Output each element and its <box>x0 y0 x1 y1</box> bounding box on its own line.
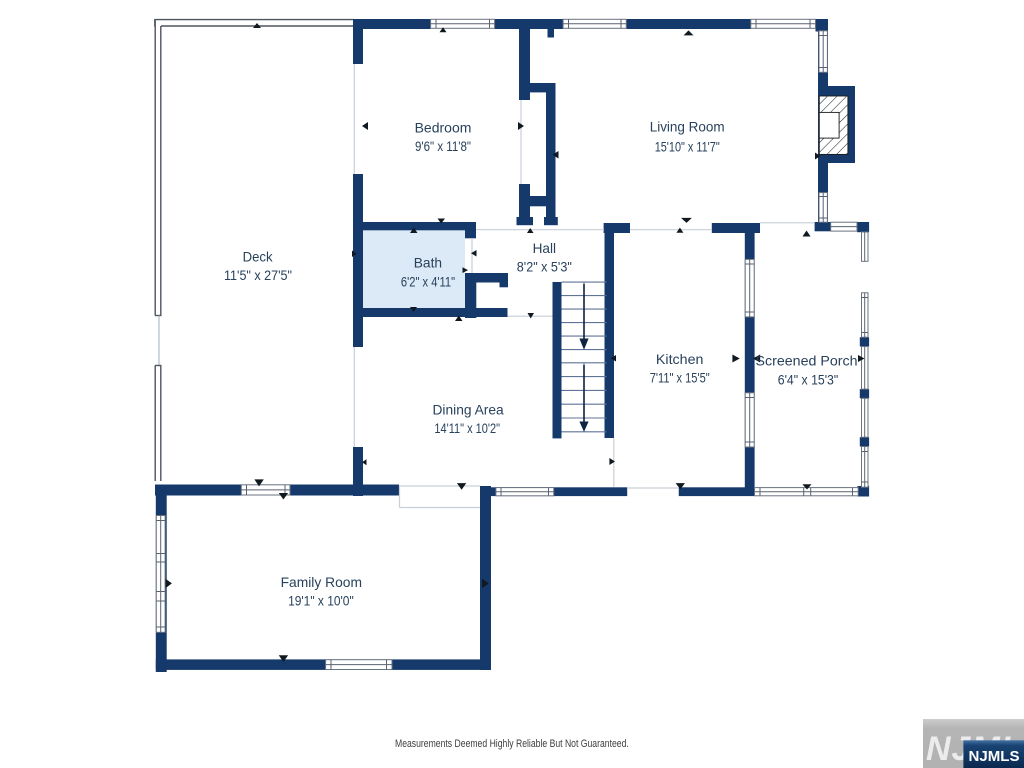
svg-text:Family Room: Family Room <box>281 574 362 590</box>
svg-text:Bath: Bath <box>414 255 442 271</box>
svg-text:6'2" x 4'11": 6'2" x 4'11" <box>401 273 455 289</box>
svg-text:Screened Porch: Screened Porch <box>756 352 858 368</box>
svg-text:Dining Area: Dining Area <box>432 401 503 417</box>
svg-text:8'2" x 5'3": 8'2" x 5'3" <box>517 258 572 274</box>
svg-text:11'5" x 27'5": 11'5" x 27'5" <box>224 267 292 283</box>
svg-text:Measurements Deemed Highly Rel: Measurements Deemed Highly Reliable But … <box>395 738 629 750</box>
svg-text:Bedroom: Bedroom <box>415 120 472 136</box>
svg-text:6'4" x 15'3": 6'4" x 15'3" <box>778 371 839 387</box>
svg-text:Living Room: Living Room <box>650 119 725 135</box>
svg-text:9'6" x 11'8": 9'6" x 11'8" <box>415 138 471 154</box>
svg-text:Deck: Deck <box>243 249 274 265</box>
svg-text:NJMLS: NJMLS <box>969 749 1020 765</box>
svg-text:7'11" x 15'5": 7'11" x 15'5" <box>650 370 710 386</box>
svg-text:Hall: Hall <box>533 240 556 256</box>
svg-text:15'10" x 11'7": 15'10" x 11'7" <box>655 139 720 155</box>
svg-text:Kitchen: Kitchen <box>656 351 704 367</box>
svg-text:19'1" x 10'0": 19'1" x 10'0" <box>288 593 354 609</box>
svg-text:14'11" x 10'2": 14'11" x 10'2" <box>434 420 500 436</box>
